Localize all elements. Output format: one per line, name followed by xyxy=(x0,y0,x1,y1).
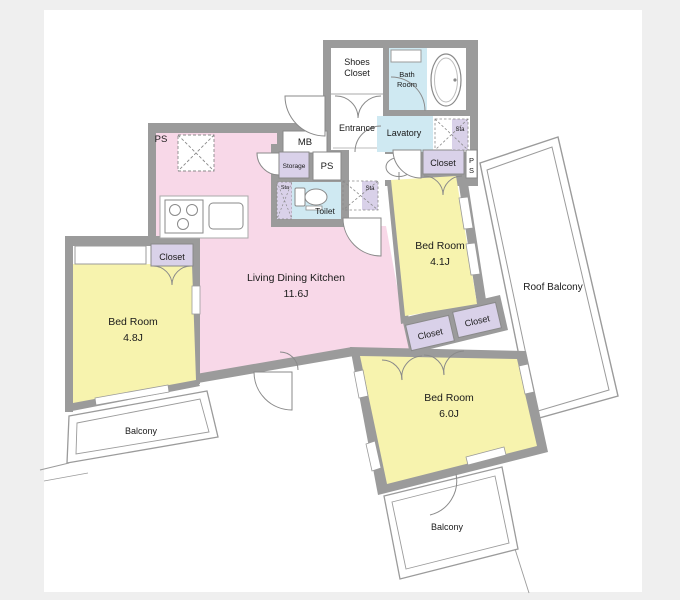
window-ldk-left xyxy=(192,286,200,314)
bath-counter xyxy=(391,50,421,62)
ps-label-ldk: PS xyxy=(155,134,168,145)
closet-top-label: Closet xyxy=(430,158,456,168)
ps-vertical-s: S xyxy=(469,166,474,175)
ps-vertical-p: P xyxy=(469,156,474,165)
refrigerator-space xyxy=(178,135,214,171)
bath-label-2: Room xyxy=(397,80,417,89)
lavatory-label: Lavatory xyxy=(387,128,422,138)
kitchen-counter xyxy=(160,196,248,238)
sta-label-3: Sta xyxy=(281,185,290,191)
stove-icon xyxy=(165,200,203,233)
bedroom-left-top-cabinet xyxy=(75,246,146,264)
balcony-bottom-label: Balcony xyxy=(431,522,464,532)
bedroom-left-size: 4.8J xyxy=(123,332,143,344)
bath-label-1: Bath xyxy=(399,70,414,79)
floorplan-image: Roof Balcony xyxy=(0,0,680,600)
bedroom-right-size: 4.1J xyxy=(430,256,450,268)
ldk-label: Living Dining Kitchen xyxy=(247,272,345,284)
bedroom-bottom-size: 6.0J xyxy=(439,408,459,420)
mb-label: MB xyxy=(298,137,312,148)
roof-balcony-label: Roof Balcony xyxy=(523,282,582,293)
sta-label-2: Sta xyxy=(365,186,375,192)
ldk-size-label: 11.6J xyxy=(284,288,309,300)
closet-left-label: Closet xyxy=(159,252,185,262)
floorplan-page: Roof Balcony xyxy=(0,0,680,600)
bedroom-left-label: Bed Room xyxy=(108,316,158,328)
entrance-label: Entrance xyxy=(339,123,375,133)
balcony-left-label: Balcony xyxy=(125,426,158,436)
bedroom-right-label: Bed Room xyxy=(415,240,465,252)
ps-label-mid: PS xyxy=(321,161,334,172)
shoes-closet-label-1: Shoes xyxy=(344,57,370,67)
toilet-label: Toilet xyxy=(315,206,335,216)
kitchen-sink-icon xyxy=(209,203,243,229)
storage-label: Storage xyxy=(283,163,306,170)
sta-label-1: Sta xyxy=(455,127,465,133)
shoes-closet-label-2: Closet xyxy=(344,68,370,78)
bathtub-icon xyxy=(431,54,461,106)
bedroom-bottom-label: Bed Room xyxy=(424,392,474,404)
